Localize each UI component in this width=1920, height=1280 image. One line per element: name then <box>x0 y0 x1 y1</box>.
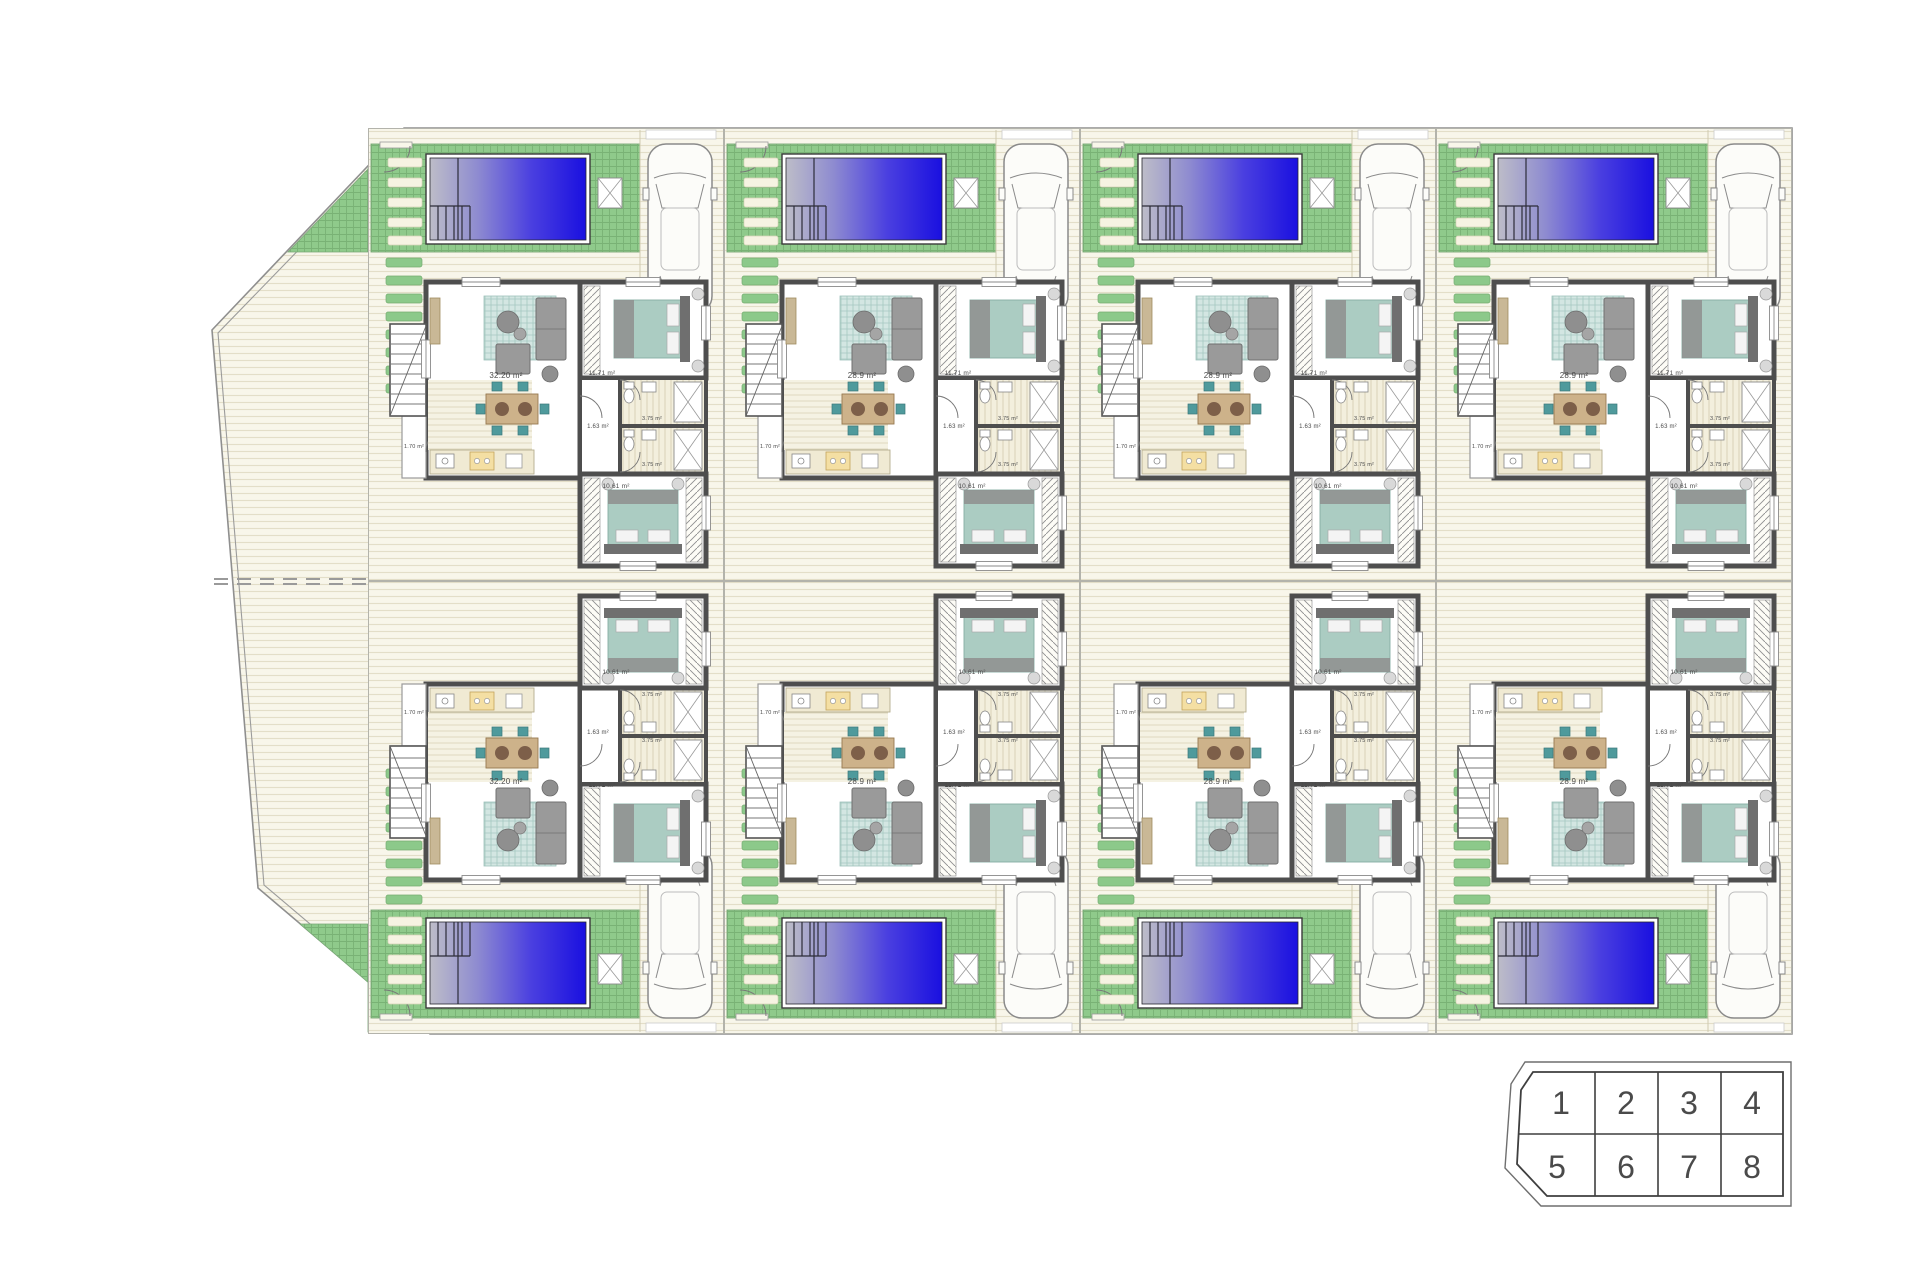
wardrobe <box>686 478 702 562</box>
bed-bottom <box>1672 608 1750 672</box>
bed-bottom <box>1672 490 1750 554</box>
room-area-label-porch: 1.70 m² <box>1116 444 1136 450</box>
room-area-label-bath-a: 3.75 m² <box>1710 416 1730 422</box>
hall <box>1648 688 1688 784</box>
fridge-icon <box>862 454 878 468</box>
armchair <box>1564 788 1598 818</box>
wardrobe <box>940 788 956 876</box>
stairs <box>1102 324 1138 416</box>
dining-area <box>1140 712 1261 782</box>
villa-plot-4: 28.9 m² 11.71 m² 1.63 m² 3.75 m² 3.75 m²… <box>1436 128 1792 581</box>
wardrobe <box>584 600 600 684</box>
pool-shower-pad-icon <box>1666 178 1690 208</box>
pool <box>782 918 946 1008</box>
legend-cell-3: 3 <box>1680 1085 1698 1121</box>
room-area-label-hall: 1.63 m² <box>1299 424 1321 430</box>
dining-area <box>784 380 905 450</box>
stove-icon <box>826 692 850 710</box>
pool-shower-pad-icon <box>1310 178 1334 208</box>
wardrobe <box>1754 478 1770 562</box>
pool-shower-pad-icon <box>1666 954 1690 984</box>
room-area-label-bath-b: 3.75 m² <box>642 462 662 468</box>
sink-icon <box>1504 454 1522 468</box>
room-area-label-living: 28.9 m² <box>1204 777 1233 786</box>
dining-area <box>1140 380 1261 450</box>
wardrobe <box>584 478 600 562</box>
stove-icon <box>1538 692 1562 710</box>
tv-cabinet <box>786 298 796 344</box>
pool <box>1138 154 1302 244</box>
pool <box>1494 918 1658 1008</box>
room-area-label-bath-a: 3.75 m² <box>1710 738 1730 744</box>
tv-cabinet <box>1142 818 1152 864</box>
stove-icon <box>1182 452 1206 470</box>
tv-cabinet <box>1498 818 1508 864</box>
bed-bottom <box>1316 608 1394 672</box>
wardrobe <box>1042 600 1058 684</box>
wardrobe <box>584 788 600 876</box>
stairs <box>390 746 426 838</box>
pool-shower-pad-icon <box>598 178 622 208</box>
wardrobe <box>1398 600 1414 684</box>
room-area-label-living: 28.9 m² <box>848 371 877 380</box>
pool-shower-pad-icon <box>954 178 978 208</box>
dining-area <box>784 712 905 782</box>
villa-plot-8: 28.9 m² 11.71 m² 1.63 m² 3.75 m² 3.75 m²… <box>1436 581 1792 1034</box>
pool <box>426 918 590 1008</box>
pouf <box>1254 366 1270 382</box>
room-area-label-bath-b: 3.75 m² <box>998 462 1018 468</box>
pool-shower-pad-icon <box>954 954 978 984</box>
wardrobe <box>1398 478 1414 562</box>
bed-top <box>614 800 690 866</box>
wardrobe <box>1042 478 1058 562</box>
kitchen-counter <box>1142 688 1246 712</box>
legend-cell-8: 8 <box>1743 1149 1761 1185</box>
room-area-label-bath-b: 3.75 m² <box>1710 462 1730 468</box>
room-area-label-bath-a: 3.75 m² <box>1354 416 1374 422</box>
tv-cabinet <box>1142 298 1152 344</box>
wardrobe <box>1296 788 1312 876</box>
tv-cabinet <box>1498 298 1508 344</box>
room-area-label-bath-b: 3.75 m² <box>998 692 1018 698</box>
wardrobe <box>1652 600 1668 684</box>
room-area-label-bed-top: 11.71 m² <box>945 782 972 789</box>
pool <box>426 154 590 244</box>
wardrobe <box>1296 600 1312 684</box>
room-area-label-bath-a: 3.75 m² <box>642 738 662 744</box>
legend-cell-6: 6 <box>1617 1149 1635 1185</box>
stove-icon <box>470 692 494 710</box>
room-area-label-living: 32.20 m² <box>489 371 522 380</box>
kitchen-counter <box>786 450 890 474</box>
pouf <box>898 780 914 796</box>
room-area-label-hall: 1.63 m² <box>587 424 609 430</box>
stove-icon <box>826 452 850 470</box>
room-area-label-hall: 1.63 m² <box>943 424 965 430</box>
dining-area <box>428 712 549 782</box>
tv-cabinet <box>430 818 440 864</box>
room-area-label-bath-a: 3.75 m² <box>998 416 1018 422</box>
stairs <box>1458 746 1494 838</box>
plot-key-legend: 1 2 3 4 5 6 7 8 <box>1495 1056 1795 1216</box>
hall <box>1292 688 1332 784</box>
legend-cell-4: 4 <box>1743 1085 1761 1121</box>
room-area-label-living: 32.20 m² <box>489 777 522 786</box>
room-area-label-porch: 1.70 m² <box>1116 710 1136 716</box>
bed-bottom <box>604 490 682 554</box>
legend-cell-1: 1 <box>1552 1085 1570 1121</box>
fridge-icon <box>1218 454 1234 468</box>
pouf <box>1254 780 1270 796</box>
room-area-label-porch: 1.70 m² <box>760 710 780 716</box>
pouf <box>542 366 558 382</box>
room-area-label-living: 28.9 m² <box>1560 777 1589 786</box>
room-area-label-porch: 1.70 m² <box>1472 710 1492 716</box>
room-area-label-bed-bottom: 10.61 m² <box>958 669 986 676</box>
bed-top <box>1326 800 1402 866</box>
kitchen-counter <box>1498 688 1602 712</box>
wardrobe <box>686 600 702 684</box>
room-area-label-bed-bottom: 10.61 m² <box>958 483 986 490</box>
room-area-label-living: 28.9 m² <box>848 777 877 786</box>
room-area-label-bath-b: 3.75 m² <box>642 692 662 698</box>
sink-icon <box>792 694 810 708</box>
hall <box>580 688 620 784</box>
stairs <box>746 324 782 416</box>
pool <box>1138 918 1302 1008</box>
wardrobe <box>1652 478 1668 562</box>
pool-shower-pad-icon <box>598 954 622 984</box>
wardrobe <box>1296 286 1312 374</box>
bed-top <box>1326 296 1402 362</box>
room-area-label-bed-bottom: 10.61 m² <box>1670 669 1698 676</box>
stairs <box>390 324 426 416</box>
room-area-label-bed-top: 11.71 m² <box>1301 370 1328 377</box>
stairs <box>746 746 782 838</box>
bed-bottom <box>604 608 682 672</box>
armchair <box>852 788 886 818</box>
armchair <box>1208 344 1242 374</box>
tv-cabinet <box>430 298 440 344</box>
wardrobe <box>940 600 956 684</box>
stove-icon <box>1182 692 1206 710</box>
room-area-label-porch: 1.70 m² <box>404 444 424 450</box>
armchair <box>852 344 886 374</box>
dining-area <box>1496 380 1617 450</box>
room-area-label-bed-bottom: 10.61 m² <box>1670 483 1698 490</box>
kitchen-counter <box>786 688 890 712</box>
room-area-label-bed-top: 11.71 m² <box>945 370 972 377</box>
room-area-label-hall: 1.63 m² <box>943 730 965 736</box>
armchair <box>1208 788 1242 818</box>
wardrobe <box>1754 600 1770 684</box>
fridge-icon <box>506 694 522 708</box>
legend-cell-7: 7 <box>1680 1149 1698 1185</box>
stove-icon <box>1538 452 1562 470</box>
villa-plot-6: 28.9 m² 11.71 m² 1.63 m² 3.75 m² 3.75 m²… <box>724 581 1080 1034</box>
room-area-label-porch: 1.70 m² <box>760 444 780 450</box>
bed-bottom <box>960 490 1038 554</box>
pouf <box>542 780 558 796</box>
room-area-label-bed-top: 11.71 m² <box>1657 782 1684 789</box>
fridge-icon <box>1574 694 1590 708</box>
bed-top <box>1682 800 1758 866</box>
room-area-label-bed-bottom: 10.61 m² <box>602 669 630 676</box>
fridge-icon <box>1574 454 1590 468</box>
room-area-label-bed-top: 11.71 m² <box>589 782 616 789</box>
stove-icon <box>470 452 494 470</box>
fridge-icon <box>862 694 878 708</box>
fridge-icon <box>1218 694 1234 708</box>
wardrobe <box>1652 286 1668 374</box>
bed-top <box>1682 296 1758 362</box>
dining-area <box>1496 712 1617 782</box>
wardrobe <box>1652 788 1668 876</box>
bed-top <box>614 296 690 362</box>
legend-cell-2: 2 <box>1617 1085 1635 1121</box>
villa-plot-5: 32.20 m² 11.71 m² 1.63 m² 3.75 m² 3.75 m… <box>368 581 724 1034</box>
kitchen-counter <box>1142 450 1246 474</box>
villa-plot-7: 28.9 m² 11.71 m² 1.63 m² 3.75 m² 3.75 m²… <box>1080 581 1436 1034</box>
room-area-label-bath-b: 3.75 m² <box>1354 462 1374 468</box>
room-area-label-bath-a: 3.75 m² <box>1354 738 1374 744</box>
room-area-label-hall: 1.63 m² <box>1299 730 1321 736</box>
room-area-label-bath-a: 3.75 m² <box>998 738 1018 744</box>
kitchen-counter <box>430 688 534 712</box>
pouf <box>898 366 914 382</box>
room-area-label-bath-b: 3.75 m² <box>1354 692 1374 698</box>
pouf <box>1610 366 1626 382</box>
sink-icon <box>792 454 810 468</box>
stairs <box>1458 324 1494 416</box>
room-area-label-porch: 1.70 m² <box>404 710 424 716</box>
room-area-label-hall: 1.63 m² <box>587 730 609 736</box>
sink-icon <box>1148 694 1166 708</box>
dining-area <box>428 380 549 450</box>
room-area-label-bed-top: 11.71 m² <box>1301 782 1328 789</box>
villa-plot-2: 28.9 m² 11.71 m² 1.63 m² 3.75 m² 3.75 m²… <box>724 128 1080 581</box>
armchair <box>1564 344 1598 374</box>
room-area-label-bath-a: 3.75 m² <box>642 416 662 422</box>
sink-icon <box>436 694 454 708</box>
pool-shower-pad-icon <box>1310 954 1334 984</box>
room-area-label-bed-top: 11.71 m² <box>589 370 616 377</box>
room-area-label-bed-top: 11.71 m² <box>1657 370 1684 377</box>
sink-icon <box>1504 694 1522 708</box>
pool <box>1494 154 1658 244</box>
room-area-label-bath-b: 3.75 m² <box>1710 692 1730 698</box>
bed-top <box>970 296 1046 362</box>
pool <box>782 154 946 244</box>
hall <box>936 688 976 784</box>
room-area-label-living: 28.9 m² <box>1204 371 1233 380</box>
villa-plot-1: 32.20 m² 11.71 m² 1.63 m² 3.75 m² 3.75 m… <box>368 128 724 581</box>
kitchen-counter <box>1498 450 1602 474</box>
fridge-icon <box>506 454 522 468</box>
room-area-label-hall: 1.63 m² <box>1655 424 1677 430</box>
room-area-label-bed-bottom: 10.61 m² <box>602 483 630 490</box>
sink-icon <box>1148 454 1166 468</box>
stairs <box>1102 746 1138 838</box>
legend-cell-5: 5 <box>1548 1149 1566 1185</box>
tv-cabinet <box>786 818 796 864</box>
room-area-label-living: 28.9 m² <box>1560 371 1589 380</box>
armchair <box>496 344 530 374</box>
room-area-label-bed-bottom: 10.61 m² <box>1314 669 1342 676</box>
pouf <box>1610 780 1626 796</box>
bed-bottom <box>960 608 1038 672</box>
floorplan-canvas: 32.20 m² 11.71 m² 1.63 m² 3.75 m² 3.75 m… <box>0 0 1920 1280</box>
bed-bottom <box>1316 490 1394 554</box>
kitchen-counter <box>430 450 534 474</box>
room-area-label-bed-bottom: 10.61 m² <box>1314 483 1342 490</box>
bed-top <box>970 800 1046 866</box>
wardrobe <box>940 286 956 374</box>
room-area-label-porch: 1.70 m² <box>1472 444 1492 450</box>
wardrobe <box>584 286 600 374</box>
sink-icon <box>436 454 454 468</box>
villa-plot-3: 28.9 m² 11.71 m² 1.63 m² 3.75 m² 3.75 m²… <box>1080 128 1436 581</box>
room-area-label-hall: 1.63 m² <box>1655 730 1677 736</box>
wardrobe <box>1296 478 1312 562</box>
wardrobe <box>940 478 956 562</box>
armchair <box>496 788 530 818</box>
